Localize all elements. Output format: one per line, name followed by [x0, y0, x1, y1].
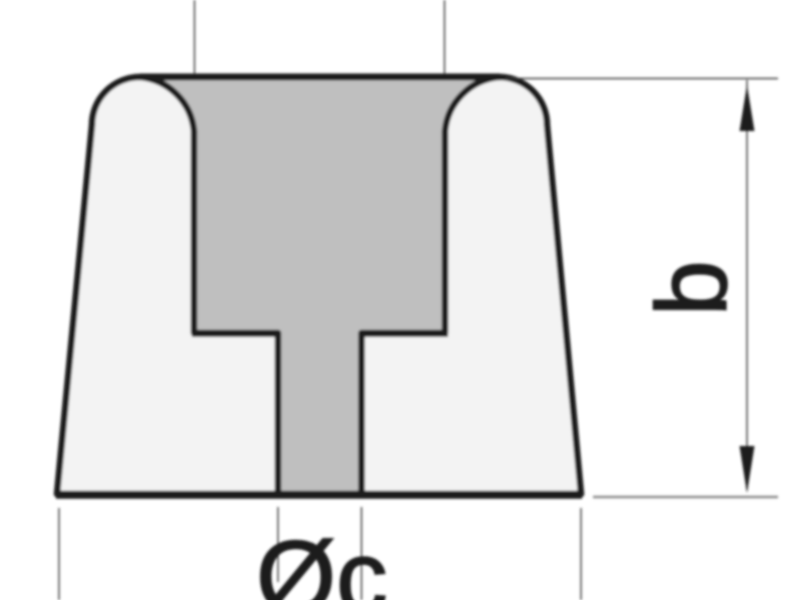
- svg-text:Øc: Øc: [256, 520, 388, 600]
- svg-text:b: b: [636, 260, 748, 316]
